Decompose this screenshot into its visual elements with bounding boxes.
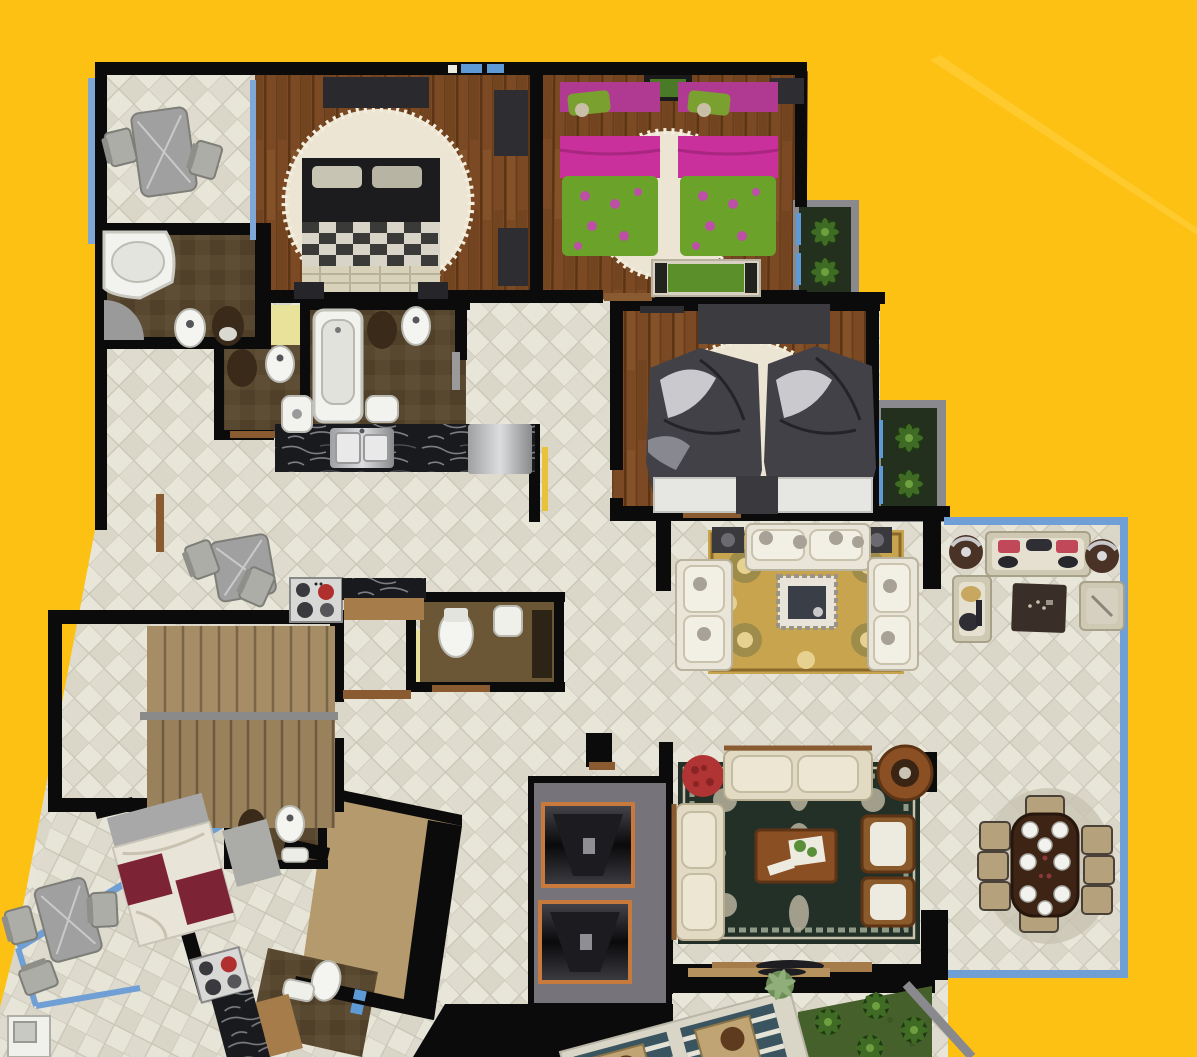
staircase: [140, 626, 338, 828]
guest-nightstand: [736, 476, 778, 514]
master-bed: [294, 158, 448, 299]
refrigerator: [468, 424, 532, 474]
elevator-cab-2: [540, 902, 630, 982]
annex-appliance: [8, 1016, 50, 1057]
balcony-plants-1: [793, 200, 859, 300]
double-sink: [330, 428, 394, 468]
terrace-lounge: [949, 532, 1124, 642]
lounge-sofa: [986, 532, 1090, 576]
salon-sofa-top: [724, 748, 872, 800]
toilet-dark: [212, 306, 244, 346]
salon-chair-1: [862, 816, 914, 872]
cooktop-counter: [342, 578, 426, 600]
salon-round-table: [878, 746, 932, 800]
window-markers: [448, 64, 504, 73]
floor-plan-rendering: [0, 0, 1197, 1057]
floor-plan-page: [0, 0, 1197, 1057]
sofa-top: [746, 524, 870, 570]
kids-bed-right: [678, 82, 778, 256]
bidet: [175, 309, 205, 347]
sofa-right: [868, 558, 918, 670]
elevator-cab-1: [543, 804, 633, 886]
salon-chair-2: [862, 878, 914, 926]
washbasin: [282, 396, 312, 432]
wardrobe-2: [498, 228, 528, 286]
guest-dresser: [698, 304, 830, 344]
elevators: [528, 776, 672, 1010]
lounge-rug: [1011, 583, 1067, 633]
top-terrace-glass-right: [250, 80, 256, 240]
red-flower-plant: [682, 755, 724, 797]
balcony-plants-2: [874, 400, 946, 522]
kitchen-door-marker: [542, 447, 548, 511]
lounge-armchair-left: [953, 576, 991, 642]
kids-bed-left: [560, 82, 660, 256]
round-side-table-left: [949, 535, 983, 569]
wardrobe: [494, 90, 528, 156]
salon-coffee-table: [756, 830, 836, 882]
salon-sofa-left: [674, 804, 724, 940]
cooktop-cabinet: [344, 598, 424, 620]
guest-bed-right: [764, 346, 876, 512]
lounge-armchair-right: [1080, 582, 1124, 630]
cooktop: [290, 578, 342, 622]
top-terrace-glass-left: [88, 78, 95, 244]
tv-console: [323, 77, 429, 108]
round-side-table-right: [1085, 539, 1119, 573]
kids-bench: [652, 260, 760, 296]
sofa-left: [676, 560, 732, 670]
